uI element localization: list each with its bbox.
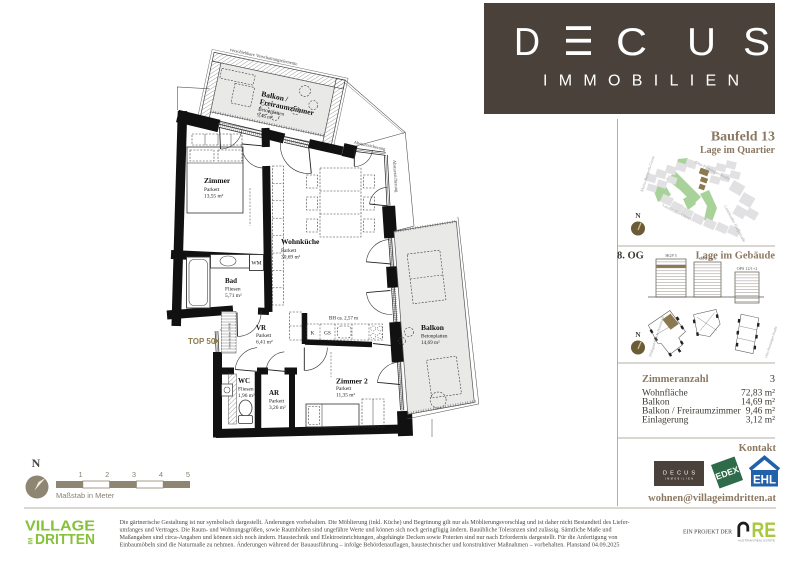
svg-text:GS: GS	[324, 331, 331, 337]
svg-text:13,55 m²: 13,55 m²	[204, 194, 224, 200]
svg-text:Balkon: Balkon	[421, 323, 445, 332]
svg-text:HGP 5: HGP 5	[665, 253, 676, 258]
svg-text:EIN PROJEKT DER: EIN PROJEKT DER	[683, 529, 733, 536]
svg-text:OPS 12/1+2: OPS 12/1+2	[737, 266, 758, 271]
svg-text:11,35 m²: 11,35 m²	[336, 393, 355, 399]
svg-text:Parkett: Parkett	[204, 187, 220, 193]
svg-text:TOP 50: TOP 50	[188, 337, 216, 346]
svg-text:D: D	[514, 21, 540, 64]
svg-text:N: N	[635, 330, 641, 339]
svg-text:DRITTEN: DRITTEN	[35, 532, 95, 548]
svg-text:Einbaumöbeln sind die Naturmaß: Einbaumöbeln sind die Naturmaße zu nehme…	[120, 542, 620, 549]
svg-text:Schacht über BWK: Schacht über BWK	[228, 322, 232, 349]
svg-text:4: 4	[159, 470, 163, 479]
svg-text:30,69 m²: 30,69 m²	[281, 255, 301, 261]
svg-text:S: S	[743, 21, 770, 64]
svg-text:Parkett: Parkett	[336, 386, 352, 392]
svg-text:3,26 m²: 3,26 m²	[269, 405, 286, 411]
svg-text:Kontakt: Kontakt	[739, 443, 777, 454]
svg-text:IM: IM	[29, 538, 35, 545]
svg-text:BH ca. 2,57 m: BH ca. 2,57 m	[329, 317, 358, 322]
svg-text:1,96 m²: 1,96 m²	[238, 393, 255, 399]
svg-text:Zimmer: Zimmer	[204, 176, 231, 185]
svg-text:AR: AR	[269, 389, 280, 397]
svg-text:Parkett: Parkett	[269, 399, 285, 405]
svg-text:14,69 m²: 14,69 m²	[421, 340, 440, 346]
svg-text:C: C	[616, 21, 647, 64]
svg-text:VR: VR	[256, 324, 267, 332]
svg-text:3: 3	[132, 470, 136, 479]
svg-text:Parkett: Parkett	[256, 333, 272, 339]
svg-text:6,41 m²: 6,41 m²	[256, 340, 273, 346]
svg-text:Fliesen: Fliesen	[225, 287, 241, 293]
svg-text:5,71 m²: 5,71 m²	[225, 293, 242, 299]
svg-text:8. OG: 8. OG	[617, 251, 644, 262]
svg-text:Lage im Quartier: Lage im Quartier	[700, 145, 776, 156]
svg-text:WM: WM	[251, 261, 261, 267]
svg-text:Zimmer 2: Zimmer 2	[336, 377, 368, 386]
svg-text:wohnen@villageimdritten.at: wohnen@villageimdritten.at	[648, 493, 776, 504]
svg-text:Bad: Bad	[225, 277, 237, 285]
svg-text:Einlagerung: Einlagerung	[642, 416, 689, 426]
svg-text:K: K	[311, 331, 315, 337]
svg-text:U: U	[687, 21, 716, 64]
svg-text:EHL: EHL	[753, 475, 776, 487]
svg-text:3: 3	[770, 374, 775, 385]
svg-text:3,12 m²: 3,12 m²	[746, 416, 775, 426]
svg-text:AUSTRIAN REAL ESTATE: AUSTRIAN REAL ESTATE	[738, 539, 775, 543]
svg-text:Maßstab in Meter: Maßstab in Meter	[56, 491, 115, 500]
svg-text:Wohnküche: Wohnküche	[281, 237, 320, 246]
svg-text:Baufeld 13: Baufeld 13	[711, 130, 775, 145]
svg-text:Maßangaben sind circa-Angaben: Maßangaben sind circa-Angaben und können…	[120, 534, 618, 541]
svg-text:1: 1	[79, 470, 83, 479]
svg-text:WC: WC	[238, 377, 250, 385]
svg-text:N: N	[635, 211, 641, 220]
svg-text:Die gärtnerische Gestaltung is: Die gärtnerische Gestaltung ist nur symb…	[120, 519, 630, 526]
svg-text:N: N	[32, 456, 41, 470]
svg-text:umfanges und Vertrages. Die Ra: umfanges und Vertrages. Die Raum- und Wo…	[120, 527, 612, 534]
svg-text:Fliesen: Fliesen	[238, 387, 254, 393]
svg-text:Zimmeranzahl: Zimmeranzahl	[642, 374, 709, 385]
svg-text:2: 2	[105, 470, 109, 479]
svg-text:5: 5	[186, 470, 190, 479]
svg-text:OPS 12/3: OPS 12/3	[699, 256, 715, 261]
svg-text:Betonplatten: Betonplatten	[421, 334, 448, 340]
